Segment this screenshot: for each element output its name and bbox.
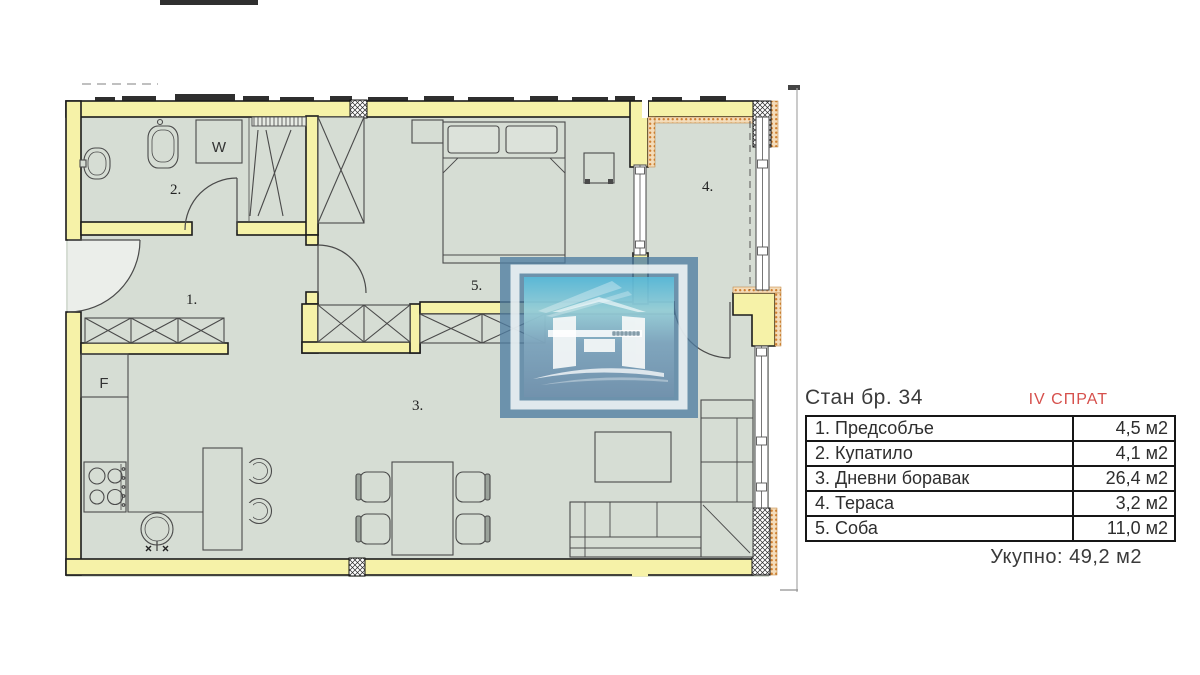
bedroom-side-table: [584, 153, 614, 184]
room-area-cell: 4,5 м2: [1073, 416, 1175, 441]
pillow-right: [506, 126, 557, 153]
bathroom-wall-left: [81, 222, 192, 235]
room-label-living: 3.: [412, 398, 423, 414]
room-name-cell: 1. Предсобље: [806, 416, 1073, 441]
left-wall-upper: [66, 101, 81, 240]
room-area-cell: 26,4 м2: [1073, 466, 1175, 491]
floor-plan-drawing: 1. 2. 3. 4. 5. W F: [0, 0, 800, 675]
apartment-info-panel: Стан бр. 34 IV СПРАТ 1. Предсобље 4,5 м2…: [805, 386, 1144, 569]
room-area-cell: 4,1 м2: [1073, 441, 1175, 466]
terrace-top-wall: [648, 101, 758, 117]
hall-step-wall-2: [410, 304, 420, 353]
apartment-title: Стан бр. 34: [805, 386, 923, 410]
room-label-bedroom: 5.: [471, 278, 482, 294]
fridge-label: F: [99, 375, 108, 392]
room-name-cell: 5. Соба: [806, 516, 1073, 541]
top-neighbour-bar: [160, 0, 258, 5]
hall-wardrobe-left: [85, 318, 224, 343]
dining-table: [392, 462, 453, 555]
bedroom-terrace-glass-door: [634, 165, 646, 255]
wall-joint-gap: [642, 99, 648, 118]
floor-label: IV СПРАТ: [1029, 391, 1144, 409]
table-row: 2. Купатило 4,1 м2: [806, 441, 1175, 466]
bedroom-door-stub-bottom: [306, 292, 318, 304]
bedroom-door-stub-top: [306, 235, 318, 245]
left-wall-lower: [66, 312, 81, 575]
coffee-table: [595, 432, 671, 482]
table-row: 1. Предсобље 4,5 м2: [806, 416, 1175, 441]
panel-header: Стан бр. 34 IV СПРАТ: [805, 386, 1144, 412]
bottom-wall: [66, 559, 753, 575]
nightstand: [412, 120, 443, 143]
logo-scale-strip: [548, 330, 642, 337]
room-area-cell: 3,2 м2: [1073, 491, 1175, 516]
room-name-cell: 4. Тераса: [806, 491, 1073, 516]
column-bottom: [349, 558, 365, 576]
floor-plan-page: 1. 2. 3. 4. 5. W F Стан бр. 34 IV СПРАТ: [0, 0, 1200, 675]
bathroom-bedroom-wall: [306, 116, 318, 235]
column-bottom-right: [752, 508, 770, 575]
watermark-logo: [500, 257, 698, 418]
living-room-window: [755, 346, 768, 508]
shower-radiator: [252, 117, 306, 126]
room-name-cell: 3. Дневни боравак: [806, 466, 1073, 491]
column-top: [350, 100, 367, 118]
room-label-hallway: 1.: [186, 292, 197, 308]
table-row: 5. Соба 11,0 м2: [806, 516, 1175, 541]
washing-machine-label: W: [212, 139, 227, 156]
room-area-cell: 11,0 м2: [1073, 516, 1175, 541]
total-area: Укупно: 49,2 м2: [805, 546, 1144, 569]
hall-wall-mid: [302, 342, 420, 353]
hall-wall-left: [81, 343, 228, 354]
bedroom-closet: [318, 117, 364, 223]
room-name-cell: 2. Купатило: [806, 441, 1073, 466]
room-label-bathroom: 2.: [170, 182, 181, 198]
room-area-table: 1. Предсобље 4,5 м2 2. Купатило 4,1 м2 3…: [805, 415, 1176, 542]
room-label-terrace: 4.: [702, 179, 713, 195]
pillow-left: [448, 126, 499, 153]
double-bed: [443, 122, 565, 263]
wall-line-break: [632, 572, 648, 577]
hall-wardrobe-right: [318, 305, 410, 342]
table-row: 4. Тераса 3,2 м2: [806, 491, 1175, 516]
table-row: 3. Дневни боравак 26,4 м2: [806, 466, 1175, 491]
